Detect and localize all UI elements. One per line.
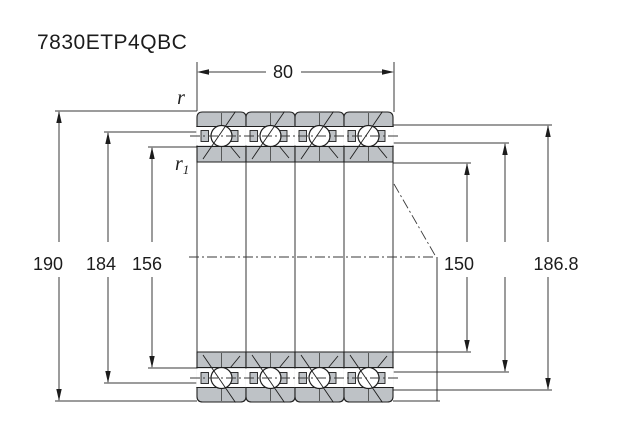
contact-line-extension — [394, 184, 436, 257]
dimension-middle — [502, 143, 507, 372]
bearing-block — [343, 352, 393, 403]
bearing-block — [294, 352, 344, 403]
dimension-width-80 — [197, 69, 394, 74]
bearing-block — [196, 352, 246, 403]
dim-156-label: 156 — [132, 254, 162, 274]
bearing-block — [294, 112, 344, 163]
bearing-block — [245, 112, 295, 163]
drawing-title: 7830ETP4QBC — [37, 31, 187, 54]
radius-r-label: r — [177, 87, 185, 109]
bearing-block — [245, 352, 295, 403]
bearing-block — [343, 112, 393, 163]
dim-80-label: 80 — [273, 62, 293, 82]
dim-190-label: 190 — [33, 254, 63, 274]
centerlines — [189, 136, 436, 378]
arrowhead-right — [382, 69, 394, 74]
bearing-block — [196, 112, 246, 163]
arrowhead-left — [197, 69, 209, 74]
bottom-bearing-row — [196, 352, 393, 403]
dim-186-8-label: 186.8 — [533, 254, 578, 274]
dim-150-label: 150 — [444, 254, 474, 274]
technical-drawing: 7830ETP4QBC 80 190 184 156 150 186.8 r r… — [0, 0, 640, 440]
bearing-drawing-canvas: 7830ETP4QBC 80 190 184 156 150 186.8 r r… — [0, 0, 640, 440]
dim-184-label: 184 — [86, 254, 116, 274]
top-bearing-row — [196, 112, 393, 163]
radius-r1-label: r1 — [175, 153, 189, 177]
